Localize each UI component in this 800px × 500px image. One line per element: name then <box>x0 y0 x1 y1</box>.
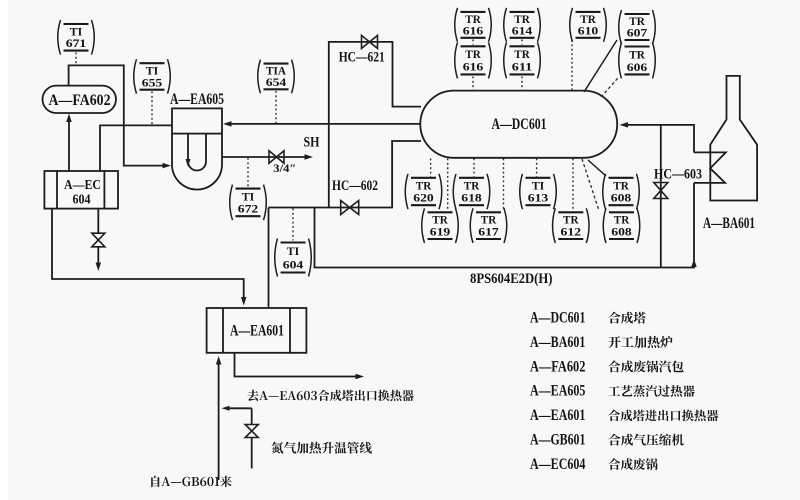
svg-text:SH: SH <box>304 135 321 151</box>
svg-text:606: 606 <box>627 62 648 74</box>
svg-text:TR: TR <box>613 180 629 192</box>
svg-text:608: 608 <box>611 227 632 239</box>
svg-text:TR: TR <box>481 215 497 227</box>
svg-text:TR: TR <box>629 49 645 61</box>
svg-text:A—FA602: A—FA602 <box>530 358 586 375</box>
svg-text:TI: TI <box>532 180 545 192</box>
svg-text:TI: TI <box>242 191 255 203</box>
svg-text:610: 610 <box>578 25 599 37</box>
svg-text:HC—602: HC—602 <box>332 178 378 194</box>
svg-text:616: 616 <box>463 62 484 74</box>
svg-text:A—EA601: A—EA601 <box>530 407 585 424</box>
svg-text:TIA: TIA <box>266 66 287 78</box>
svg-text:TR: TR <box>432 215 448 227</box>
svg-text:604: 604 <box>73 193 91 208</box>
svg-text:TR: TR <box>514 49 530 61</box>
svg-text:618: 618 <box>461 193 482 205</box>
svg-text:608: 608 <box>611 193 632 205</box>
svg-text:A—DC601: A—DC601 <box>530 310 585 327</box>
svg-text:A—BA601: A—BA601 <box>530 334 585 351</box>
svg-text:607: 607 <box>627 28 648 40</box>
svg-text:HC—621: HC—621 <box>339 50 385 66</box>
svg-text:TR: TR <box>465 49 481 61</box>
svg-text:HC—603: HC—603 <box>654 167 702 183</box>
svg-text:TR: TR <box>514 14 530 26</box>
svg-text:TR: TR <box>580 14 596 26</box>
svg-text:671: 671 <box>66 38 87 50</box>
svg-text:TR: TR <box>416 180 432 192</box>
svg-text:613: 613 <box>528 193 549 205</box>
svg-text:617: 617 <box>478 227 499 239</box>
svg-text:TR: TR <box>614 215 630 227</box>
svg-text:A—EC: A—EC <box>64 178 101 193</box>
svg-text:TI: TI <box>287 246 300 258</box>
svg-text:TR: TR <box>629 16 645 28</box>
svg-text:8PS604E2D(H): 8PS604E2D(H) <box>470 271 553 287</box>
svg-text:A—EA605: A—EA605 <box>530 383 586 400</box>
svg-text:TR: TR <box>464 180 480 192</box>
svg-text:A—FA602: A—FA602 <box>49 92 111 109</box>
svg-text:611: 611 <box>512 62 533 74</box>
svg-text:A—EA605: A—EA605 <box>170 91 224 108</box>
svg-text:TR: TR <box>465 14 481 26</box>
svg-text:A—GB601: A—GB601 <box>530 432 585 449</box>
svg-text:612: 612 <box>561 227 582 239</box>
svg-text:655: 655 <box>142 77 163 89</box>
svg-text:3/4″: 3/4″ <box>273 163 296 175</box>
svg-text:604: 604 <box>283 260 304 272</box>
svg-text:A—EC604: A—EC604 <box>530 456 586 473</box>
svg-text:672: 672 <box>238 204 259 216</box>
svg-text:620: 620 <box>413 193 434 205</box>
svg-text:A—BA601: A—BA601 <box>703 215 755 232</box>
svg-text:A—DC601: A—DC601 <box>492 116 547 133</box>
svg-text:654: 654 <box>266 77 287 89</box>
svg-text:614: 614 <box>512 25 533 37</box>
svg-text:TI: TI <box>146 66 159 78</box>
svg-text:TR: TR <box>563 215 579 227</box>
svg-text:A—EA601: A—EA601 <box>230 323 284 340</box>
svg-text:616: 616 <box>463 25 484 37</box>
svg-text:619: 619 <box>430 227 451 239</box>
svg-text:TI: TI <box>70 26 83 38</box>
